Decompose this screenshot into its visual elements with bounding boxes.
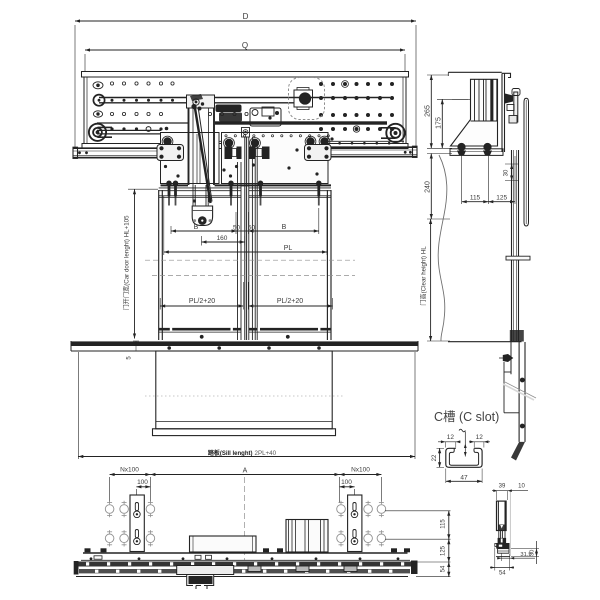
svg-text:2PL+40: 2PL+40	[255, 450, 277, 457]
svg-text:175: 175	[435, 117, 442, 129]
svg-text:(C slot): (C slot)	[459, 410, 499, 424]
svg-text:47: 47	[460, 474, 468, 481]
svg-text:30: 30	[529, 550, 535, 556]
svg-text:22: 22	[432, 454, 438, 461]
svg-text:C槽: C槽	[434, 410, 456, 424]
svg-text:160: 160	[217, 235, 228, 242]
svg-text:Nx100: Nx100	[120, 467, 139, 474]
svg-text:30: 30	[504, 169, 510, 176]
svg-text:125: 125	[440, 545, 446, 556]
svg-text:门高(Clear height) HL: 门高(Clear height) HL	[420, 246, 428, 306]
svg-text:12: 12	[476, 434, 484, 441]
svg-text:A: A	[243, 468, 248, 475]
svg-text:100: 100	[137, 479, 148, 486]
svg-text:240: 240	[424, 181, 431, 193]
svg-text:Nx100: Nx100	[351, 467, 370, 474]
svg-text:门开门宽(Car door lenght) HL+105: 门开门宽(Car door lenght) HL+105	[123, 215, 131, 311]
svg-text:B: B	[282, 224, 287, 231]
svg-text:54: 54	[499, 571, 506, 577]
svg-text:PL: PL	[284, 245, 293, 252]
svg-text:PL/2+20: PL/2+20	[189, 298, 215, 305]
svg-text:12: 12	[447, 434, 455, 441]
svg-text:54: 54	[440, 565, 446, 572]
svg-text:265: 265	[424, 105, 431, 117]
svg-text:踏板(Sill lenght): 踏板(Sill lenght)	[208, 449, 253, 457]
svg-text:Q: Q	[242, 41, 248, 50]
svg-text:39: 39	[499, 484, 506, 490]
svg-text:10: 10	[518, 484, 525, 490]
svg-text:115: 115	[440, 519, 446, 529]
svg-text:D: D	[243, 12, 249, 21]
svg-text:125: 125	[496, 195, 507, 202]
svg-text:100: 100	[341, 479, 352, 486]
svg-text:PL/2+20: PL/2+20	[277, 298, 303, 305]
svg-text:115: 115	[470, 195, 481, 202]
svg-text:B: B	[194, 224, 199, 231]
